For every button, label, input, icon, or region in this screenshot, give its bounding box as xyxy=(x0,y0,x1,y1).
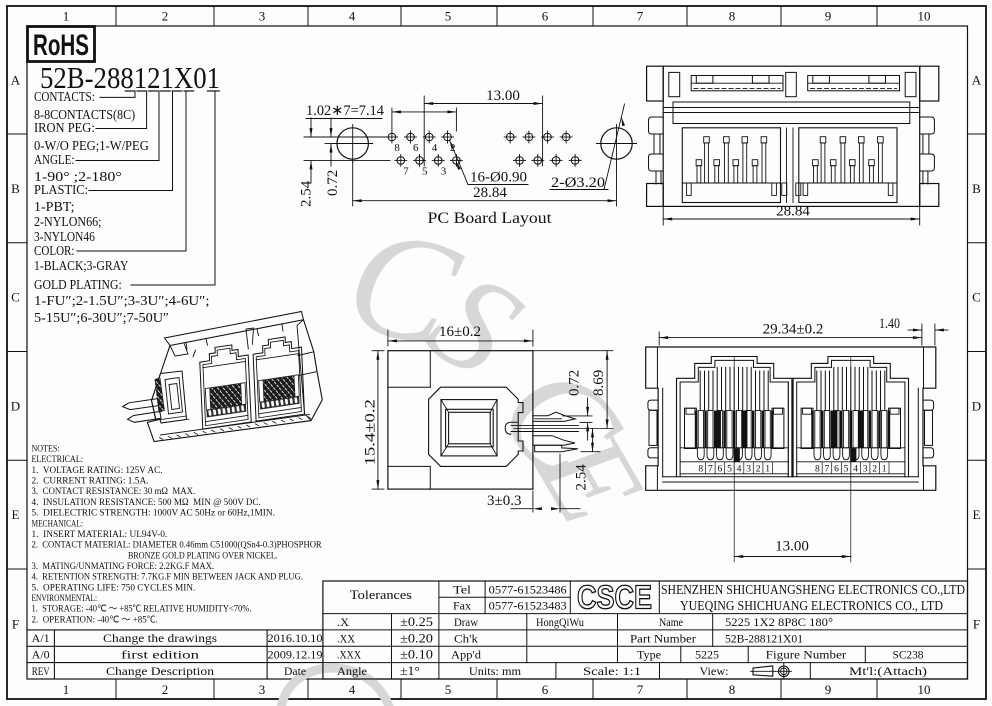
svg-text:2: 2 xyxy=(162,9,169,24)
svg-text:5: 5 xyxy=(727,463,732,474)
svg-text:B: B xyxy=(11,181,20,196)
svg-text:.X: .X xyxy=(337,615,349,629)
svg-text:CSCE: CSCE xyxy=(577,579,652,616)
svg-text:4: 4 xyxy=(737,463,742,474)
svg-text:±1°: ±1° xyxy=(400,664,420,678)
svg-text:5: 5 xyxy=(844,463,849,474)
svg-text:7: 7 xyxy=(403,166,409,178)
svg-text:5: 5 xyxy=(422,166,428,178)
svg-text:3: 3 xyxy=(746,463,751,474)
svg-text:SHENZHEN SHICHUANGSHENG ELECTR: SHENZHEN SHICHUANGSHENG ELECTRONICS CO.,… xyxy=(661,583,965,598)
svg-text:ENVIRONMENTAL:: ENVIRONMENTAL: xyxy=(32,594,98,604)
svg-text:6: 6 xyxy=(834,463,839,474)
svg-text:3. CONTACT RESISTANCE: 30 mΩ: 3. CONTACT RESISTANCE: 30 mΩ MAX. xyxy=(32,487,196,497)
svg-text:1: 1 xyxy=(63,9,70,24)
svg-text:4. RETENTION STRENGTH: 7.7KG.: 4. RETENTION STRENGTH: 7.7KG.F MIN BETWE… xyxy=(32,573,303,583)
svg-text:7: 7 xyxy=(637,9,644,24)
svg-text:3-NYLON46: 3-NYLON46 xyxy=(34,229,95,244)
svg-text:5. OPERATING LIFE: 750 CYCLES: 5. OPERATING LIFE: 750 CYCLES MIN. xyxy=(32,583,196,593)
svg-text:2. OPERATION: -40℃ 〜 +85℃.: 2. OPERATION: -40℃ 〜 +85℃. xyxy=(32,614,158,625)
svg-text:.XXX: .XXX xyxy=(337,648,361,662)
svg-text:1: 1 xyxy=(882,463,887,474)
svg-text:2009.12.19: 2009.12.19 xyxy=(268,648,323,662)
svg-text:1: 1 xyxy=(63,682,70,697)
svg-text:8: 8 xyxy=(698,463,703,474)
svg-text:0.72: 0.72 xyxy=(567,370,583,396)
svg-text:ELECTRICAL:: ELECTRICAL: xyxy=(32,455,84,465)
svg-text:COLOR:: COLOR: xyxy=(34,243,75,258)
svg-text:13.00: 13.00 xyxy=(486,88,520,104)
svg-text:ANGLE:: ANGLE: xyxy=(34,152,75,167)
svg-text:1-PBT;: 1-PBT; xyxy=(34,199,75,214)
svg-text:8: 8 xyxy=(394,142,400,154)
svg-text:REV: REV xyxy=(32,666,51,678)
svg-text:0577-61523483: 0577-61523483 xyxy=(489,599,567,613)
svg-text:Date: Date xyxy=(284,664,306,678)
svg-text:0577-61523486: 0577-61523486 xyxy=(489,582,567,596)
svg-text:6: 6 xyxy=(413,142,419,154)
svg-text:4: 4 xyxy=(349,682,356,697)
svg-text:first edition: first edition xyxy=(121,648,199,662)
svg-text:B: B xyxy=(972,181,981,196)
svg-text:Units: mm: Units: mm xyxy=(469,664,522,678)
svg-text:8.69: 8.69 xyxy=(591,370,607,396)
svg-text:1.40: 1.40 xyxy=(879,316,900,332)
svg-text:Change Description: Change Description xyxy=(106,664,214,678)
svg-text:.XX: .XX xyxy=(337,631,355,645)
svg-text:5225: 5225 xyxy=(695,648,719,662)
svg-text:4: 4 xyxy=(349,9,356,24)
svg-text:CONTACTS:: CONTACTS: xyxy=(34,89,95,104)
svg-text:4: 4 xyxy=(432,142,438,154)
svg-text:Part Number: Part Number xyxy=(630,631,696,645)
svg-text:IRON PEG:: IRON PEG: xyxy=(34,120,95,135)
svg-text:1. STORAGE: -40℃ 〜 +85℃ RELAT: 1. STORAGE: -40℃ 〜 +85℃ RELATIVE HUMIDIT… xyxy=(32,604,252,615)
svg-text:PLASTIC:: PLASTIC: xyxy=(34,182,88,197)
svg-text:2: 2 xyxy=(162,682,169,697)
svg-text:Type: Type xyxy=(637,648,661,662)
svg-text:Name: Name xyxy=(659,615,683,629)
svg-text:Ch'k: Ch'k xyxy=(454,631,478,645)
svg-text:A/1: A/1 xyxy=(32,633,50,645)
svg-text:6: 6 xyxy=(542,9,549,24)
svg-text:±0.10: ±0.10 xyxy=(400,648,433,662)
svg-text:PC Board Layout: PC Board Layout xyxy=(428,210,553,227)
svg-text:5: 5 xyxy=(445,9,452,24)
svg-text:28.84: 28.84 xyxy=(473,185,507,201)
svg-text:C: C xyxy=(972,290,981,305)
svg-text:8: 8 xyxy=(815,463,820,474)
svg-text:52B-288121X01: 52B-288121X01 xyxy=(725,631,803,645)
svg-text:28.84: 28.84 xyxy=(776,204,810,220)
svg-text:YUEQING SHICHUANG ELECTRONICS: YUEQING SHICHUANG ELECTRONICS CO., LTD xyxy=(680,599,943,614)
svg-text:5. DIELECTRIC STRENGTH: 1000V: 5. DIELECTRIC STRENGTH: 1000V AC 50Hz or… xyxy=(32,509,275,519)
svg-text:±0.25: ±0.25 xyxy=(400,615,433,629)
svg-text:Angle: Angle xyxy=(337,664,367,678)
svg-text:5: 5 xyxy=(445,682,452,697)
svg-text:MECHANICAL:: MECHANICAL: xyxy=(32,519,84,529)
svg-text:8: 8 xyxy=(729,682,736,697)
svg-text:2-Ø3.20: 2-Ø3.20 xyxy=(551,175,605,191)
svg-text:5225 1X2 8P8C 180°: 5225 1X2 8P8C 180° xyxy=(725,615,833,629)
svg-text:0-W/O PEG;1-W/PEG: 0-W/O PEG;1-W/PEG xyxy=(34,138,149,153)
svg-text:Change the drawings: Change the drawings xyxy=(103,631,217,645)
svg-text:3: 3 xyxy=(441,166,447,178)
svg-text:10: 10 xyxy=(918,9,931,24)
svg-text:3. MATING/UNMATING FORCE: 2.2: 3. MATING/UNMATING FORCE: 2.2KG.F MAX. xyxy=(32,562,215,572)
svg-text:E: E xyxy=(12,507,20,522)
svg-text:8: 8 xyxy=(729,9,736,24)
svg-text:2. CURRENT RATING: 1.5A.: 2. CURRENT RATING: 1.5A. xyxy=(32,477,149,487)
svg-text:1. INSERT MATERIAL: UL94V-0.: 1. INSERT MATERIAL: UL94V-0. xyxy=(32,530,168,540)
svg-text:3: 3 xyxy=(259,9,266,24)
svg-text:Tolerances: Tolerances xyxy=(350,588,412,602)
svg-text:13.00: 13.00 xyxy=(775,539,809,555)
svg-text:7: 7 xyxy=(708,463,713,474)
svg-text:View:: View: xyxy=(700,664,729,678)
svg-text:1-FU″;2-1.5U″;3-3U″;4-6U″;: 1-FU″;2-1.5U″;3-3U″;4-6U″; xyxy=(34,293,210,308)
svg-text:F: F xyxy=(973,617,980,632)
svg-text:2-NYLON66;: 2-NYLON66; xyxy=(34,214,102,229)
svg-text:NOTES:: NOTES: xyxy=(32,445,60,455)
svg-text:Mt'l:(Attach): Mt'l:(Attach) xyxy=(849,664,927,678)
svg-text:2016.10.10: 2016.10.10 xyxy=(268,631,323,645)
svg-text:App'd: App'd xyxy=(451,648,481,662)
svg-text:7: 7 xyxy=(637,682,644,697)
svg-text:Draw: Draw xyxy=(454,615,478,629)
svg-text:7: 7 xyxy=(825,463,830,474)
svg-text:2: 2 xyxy=(756,463,761,474)
svg-text:0.72: 0.72 xyxy=(325,170,341,196)
svg-text:2.54: 2.54 xyxy=(299,180,315,207)
svg-text:1. VOLTAGE RATING: 125V AC.: 1. VOLTAGE RATING: 125V AC. xyxy=(32,466,163,476)
svg-text:2: 2 xyxy=(872,463,877,474)
svg-text:16±0.2: 16±0.2 xyxy=(439,324,481,340)
svg-text:1: 1 xyxy=(765,463,770,474)
svg-text:Figure Number: Figure Number xyxy=(766,648,847,662)
svg-text:16-Ø0.90: 16-Ø0.90 xyxy=(470,170,527,186)
svg-text:A: A xyxy=(11,73,21,88)
svg-text:HongQiWu: HongQiWu xyxy=(536,615,584,629)
svg-text:BRONZE GOLD PLATING OVER NICKE: BRONZE GOLD PLATING OVER NICKEL. xyxy=(128,551,278,561)
svg-text:4: 4 xyxy=(853,463,858,474)
svg-text:E: E xyxy=(973,507,981,522)
svg-text:6: 6 xyxy=(542,682,549,697)
svg-text:3: 3 xyxy=(259,682,266,697)
svg-text:1.02∗7=7.14: 1.02∗7=7.14 xyxy=(306,103,384,119)
svg-text:4. INSULATION RESISTANCE: 500: 4. INSULATION RESISTANCE: 500 MΩ MIN @ 5… xyxy=(32,498,261,508)
svg-text:±0.20: ±0.20 xyxy=(400,631,433,645)
svg-text:Scale: 1:1: Scale: 1:1 xyxy=(583,664,641,678)
svg-text:RoHS: RoHS xyxy=(33,29,89,62)
svg-text:SC238: SC238 xyxy=(893,648,924,662)
svg-text:2.54: 2.54 xyxy=(574,464,590,491)
svg-text:10: 10 xyxy=(918,682,931,697)
svg-text:3±0.3: 3±0.3 xyxy=(487,493,521,509)
svg-text:D: D xyxy=(972,398,981,413)
svg-text:1-BLACK;3-GRAY: 1-BLACK;3-GRAY xyxy=(34,258,129,273)
svg-text:A/0: A/0 xyxy=(32,650,50,662)
svg-text:F: F xyxy=(12,617,19,632)
svg-text:A: A xyxy=(972,73,982,88)
svg-text:2. CONTACT MATERIAL: DIAMETER: 2. CONTACT MATERIAL: DIAMETER 0.46mm C51… xyxy=(32,540,323,551)
svg-text:3: 3 xyxy=(863,463,868,474)
svg-text:29.34±0.2: 29.34±0.2 xyxy=(763,322,824,338)
svg-text:5-15U″;6-30U″;7-50U″: 5-15U″;6-30U″;7-50U″ xyxy=(34,310,169,325)
svg-text:9: 9 xyxy=(825,9,832,24)
svg-text:D: D xyxy=(11,398,20,413)
svg-text:Tel: Tel xyxy=(453,582,472,596)
svg-text:6: 6 xyxy=(718,463,723,474)
svg-text:Fax: Fax xyxy=(453,599,471,613)
svg-text:9: 9 xyxy=(825,682,832,697)
svg-text:15.4±0.2: 15.4±0.2 xyxy=(363,399,379,465)
svg-text:GOLD PLATING:: GOLD PLATING: xyxy=(34,277,122,292)
svg-text:C: C xyxy=(11,290,20,305)
